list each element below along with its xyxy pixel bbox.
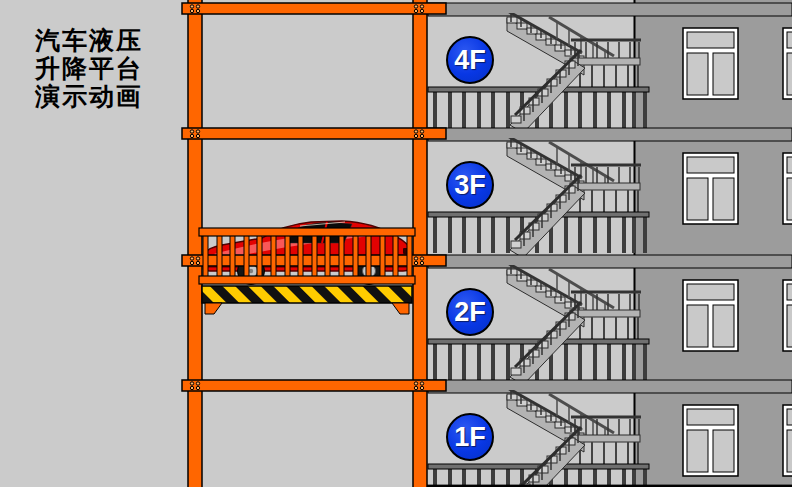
platform-top-rail	[199, 228, 415, 236]
beam-1f	[182, 380, 446, 391]
floor-badge-2f[interactable]: 2F	[446, 288, 494, 336]
hazard-stripe-deck	[202, 286, 412, 303]
platform-bottom-rail	[199, 276, 415, 284]
beam-top	[182, 3, 446, 14]
car-lift-demo-scene: 汽车液压 升降平台 演示动画 4F 3F 2F 1F	[0, 0, 792, 487]
lift-column-right	[413, 0, 427, 487]
page-title: 汽车液压 升降平台 演示动画	[24, 26, 154, 110]
beam-3f	[182, 128, 446, 139]
floor-badge-1f[interactable]: 1F	[446, 413, 494, 461]
lift-column-left	[188, 0, 202, 487]
floor-badge-4f[interactable]: 4F	[446, 36, 494, 84]
floor-badge-3f[interactable]: 3F	[446, 161, 494, 209]
